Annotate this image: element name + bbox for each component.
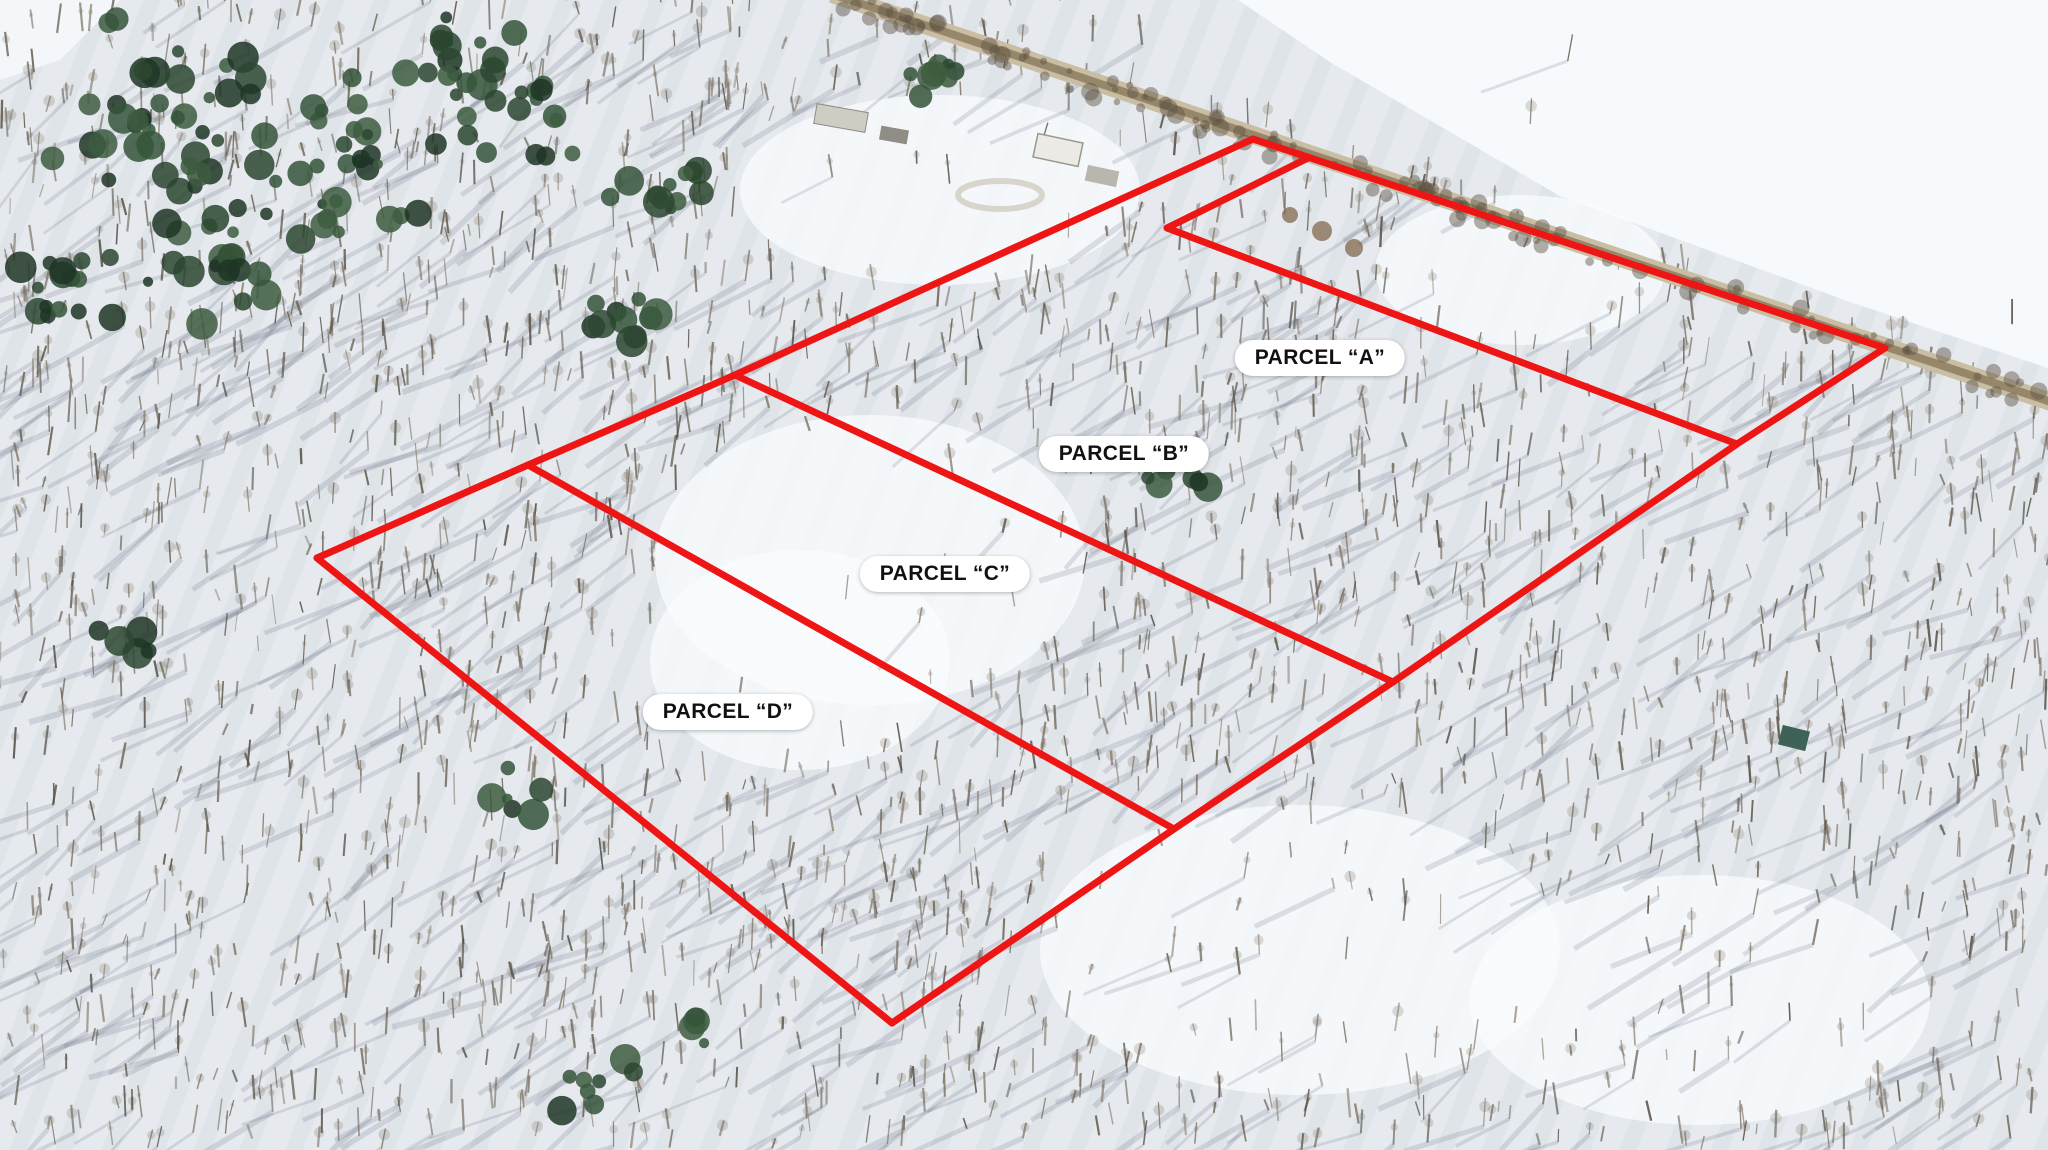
- parcel-label-b: PARCEL “B”: [1039, 436, 1209, 472]
- parcel-label-a: PARCEL “A”: [1235, 340, 1405, 376]
- parcel-label-d: PARCEL “D”: [643, 694, 813, 730]
- parcel-label-c: PARCEL “C”: [860, 556, 1030, 592]
- aerial-parcel-map: PARCEL “A” PARCEL “B” PARCEL “C” PARCEL …: [0, 0, 2048, 1150]
